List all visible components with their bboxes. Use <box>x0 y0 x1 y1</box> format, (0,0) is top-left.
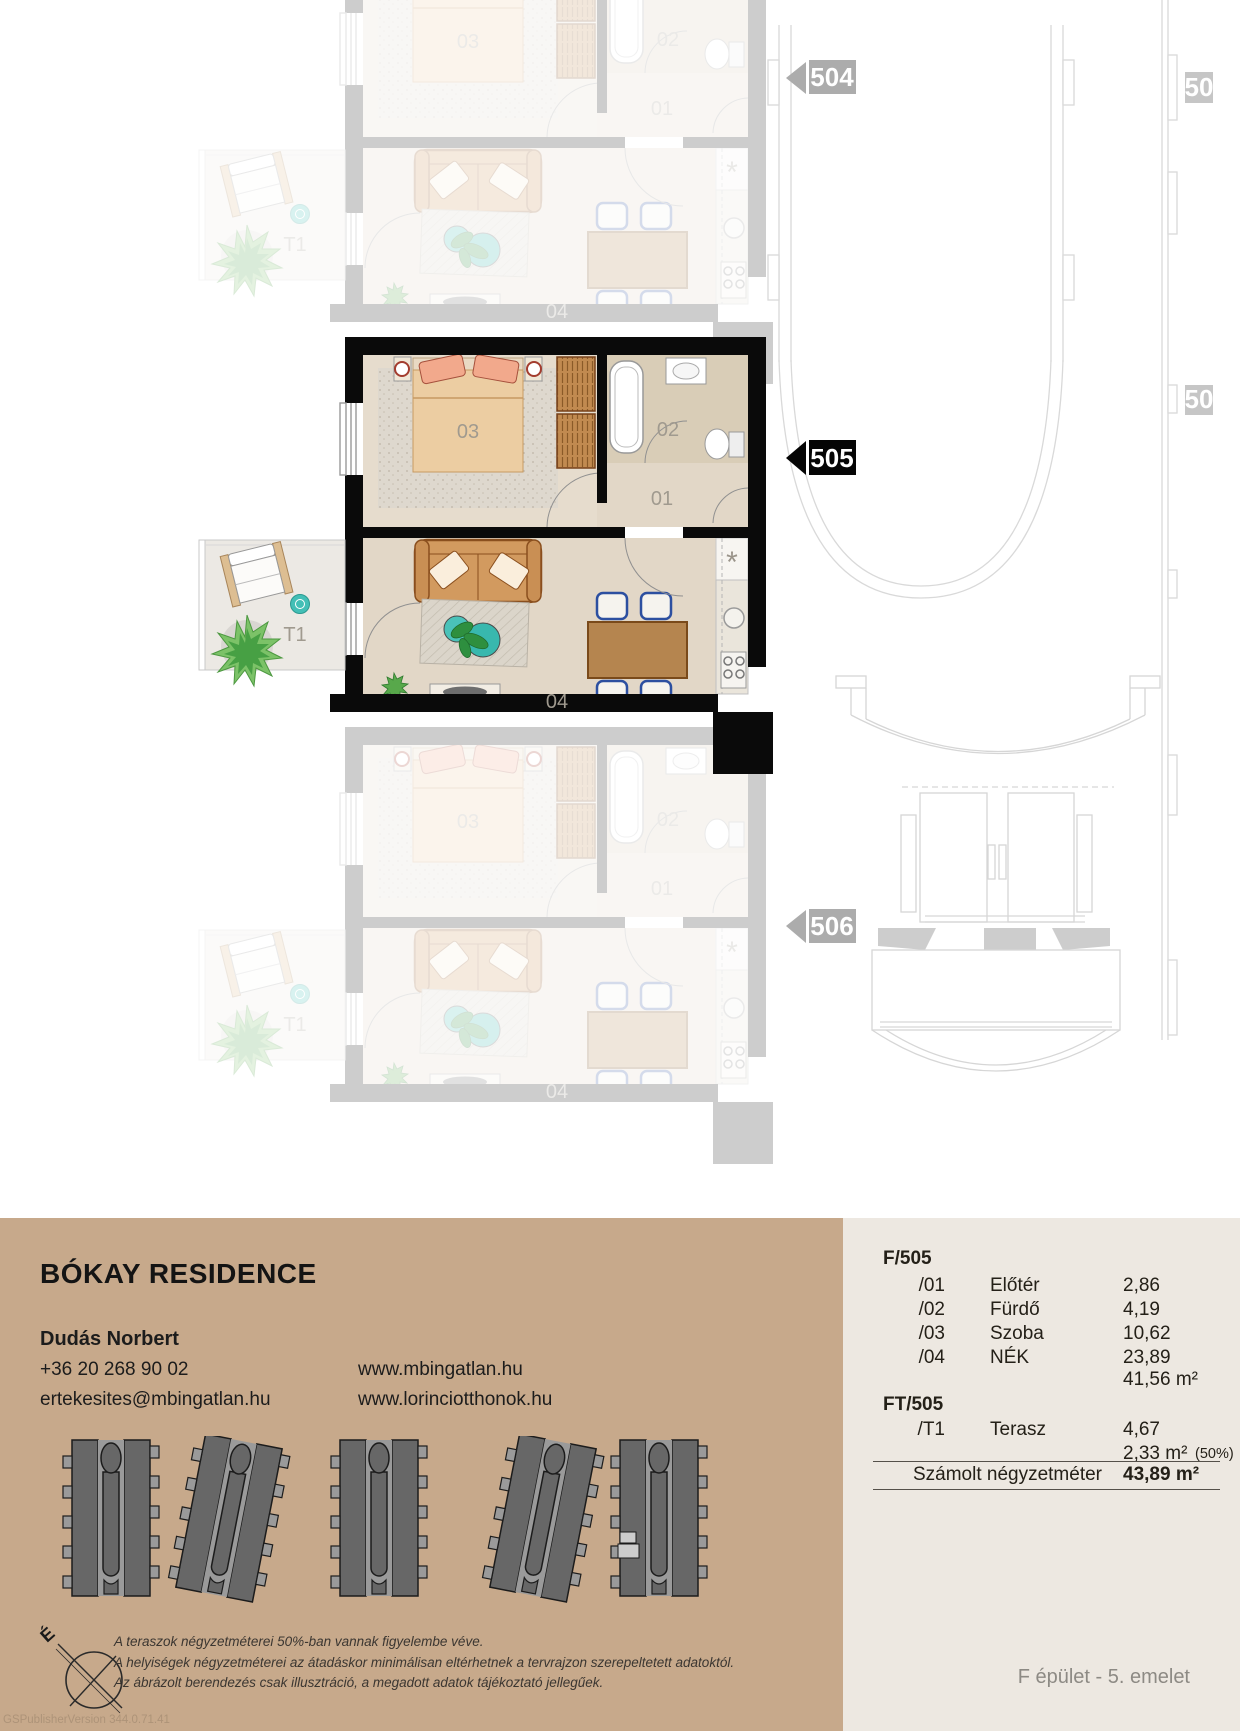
building-icon-4 <box>481 1436 605 1604</box>
room-area: 10,62 <box>1123 1323 1171 1345</box>
room-code: /02 <box>873 1299 945 1321</box>
apartment-506-faded-plan <box>199 727 773 1164</box>
watermark-text: GSPublisherVersion 344.0.71.41 <box>3 1714 170 1726</box>
svg-text:50: 50 <box>1185 72 1214 102</box>
terrace-half-note: (50%) <box>1195 1446 1234 1462</box>
marker-505: 505 <box>786 440 856 475</box>
marker-50-top: 50 <box>1185 72 1214 103</box>
adjacent-wing-outline <box>768 0 1177 1040</box>
agent-email: ertekesites@mbingatlan.hu <box>40 1389 271 1411</box>
room-name: Szoba <box>990 1323 1044 1345</box>
total-value: 43,89 m² <box>1123 1464 1199 1486</box>
subtotal-row: 41,56 m² <box>843 1369 1240 1393</box>
room-name: NÉK <box>990 1347 1029 1369</box>
floorplan-sheet: 03 02 01 04 T1 * <box>0 0 1240 1731</box>
room-area: 23,89 <box>1123 1347 1171 1369</box>
building-floor-label: F épület - 5. emelet <box>843 1666 1190 1689</box>
project-title: BÓKAY RESIDENCE <box>40 1258 317 1290</box>
room-code: /01 <box>873 1275 945 1297</box>
svg-text:50: 50 <box>1185 384 1214 414</box>
marker-50-mid: 50 <box>1185 384 1214 415</box>
website-primary: www.mbingatlan.hu <box>358 1359 523 1381</box>
terrace-group-heading: FT/505 <box>883 1394 943 1416</box>
subtotal-value: 41,56 m² <box>1123 1369 1198 1391</box>
floorplan-svg: 03 02 01 04 T1 * <box>0 0 1240 1218</box>
room-code: /04 <box>873 1347 945 1369</box>
disclaimer-line-3: Az ábrázolt berendezés csak illusztráció… <box>114 1673 764 1694</box>
disclaimer-line-1: A teraszok négyzetméterei 50%-ban vannak… <box>114 1632 764 1653</box>
total-label: Számolt négyzetméter <box>873 1464 1102 1486</box>
area-row-02: /02 Fürdő 4,19 <box>843 1299 1240 1323</box>
website-secondary: www.lorinciotthonok.hu <box>358 1389 552 1411</box>
marker-504: 504 <box>786 60 856 94</box>
room-name: Fürdő <box>990 1299 1040 1321</box>
svg-text:É: É <box>36 1622 59 1646</box>
building-icon-2 <box>167 1436 291 1604</box>
area-row-03: /03 Szoba 10,62 <box>843 1323 1240 1347</box>
apartment-504-faded-plan <box>199 0 773 384</box>
marker-506: 506 <box>786 909 856 943</box>
table-divider-top <box>873 1461 1220 1462</box>
agent-phone: +36 20 268 90 02 <box>40 1359 188 1381</box>
info-panel: BÓKAY RESIDENCE Dudás Norbert +36 20 268… <box>0 1218 843 1731</box>
svg-text:505: 505 <box>810 443 853 473</box>
unit-group-heading: F/505 <box>883 1248 932 1270</box>
terrace-row: /T1 Terasz 4,67 <box>843 1419 1240 1443</box>
site-plan-icons <box>58 1436 718 1604</box>
building-icon-1 <box>63 1440 159 1596</box>
room-area: 2,86 <box>1123 1275 1160 1297</box>
room-name: Terasz <box>990 1419 1046 1441</box>
room-code: /03 <box>873 1323 945 1345</box>
area-row-04: /04 NÉK 23,89 <box>843 1347 1240 1371</box>
building-icon-3 <box>331 1440 427 1596</box>
building-icon-5-current <box>611 1440 707 1596</box>
apartment-505-plan <box>199 337 773 774</box>
area-row-01: /01 Előtér 2,86 <box>843 1275 1240 1299</box>
area-table-panel: F/505 /01 Előtér 2,86 /02 Fürdő 4,19 /03… <box>843 1218 1240 1731</box>
disclaimer-line-2: A helyiségek négyzetméterei az átadáskor… <box>114 1653 764 1674</box>
disclaimer-text: A teraszok négyzetméterei 50%-ban vannak… <box>114 1632 764 1694</box>
agent-name: Dudás Norbert <box>40 1328 179 1351</box>
table-divider-bottom <box>873 1489 1220 1490</box>
stair-core-outline <box>836 676 1160 1071</box>
room-area: 4,67 <box>1123 1419 1160 1441</box>
svg-text:506: 506 <box>810 911 853 941</box>
room-code: /T1 <box>873 1419 945 1441</box>
room-name: Előtér <box>990 1275 1040 1297</box>
svg-text:504: 504 <box>810 62 854 92</box>
room-area: 4,19 <box>1123 1299 1160 1321</box>
